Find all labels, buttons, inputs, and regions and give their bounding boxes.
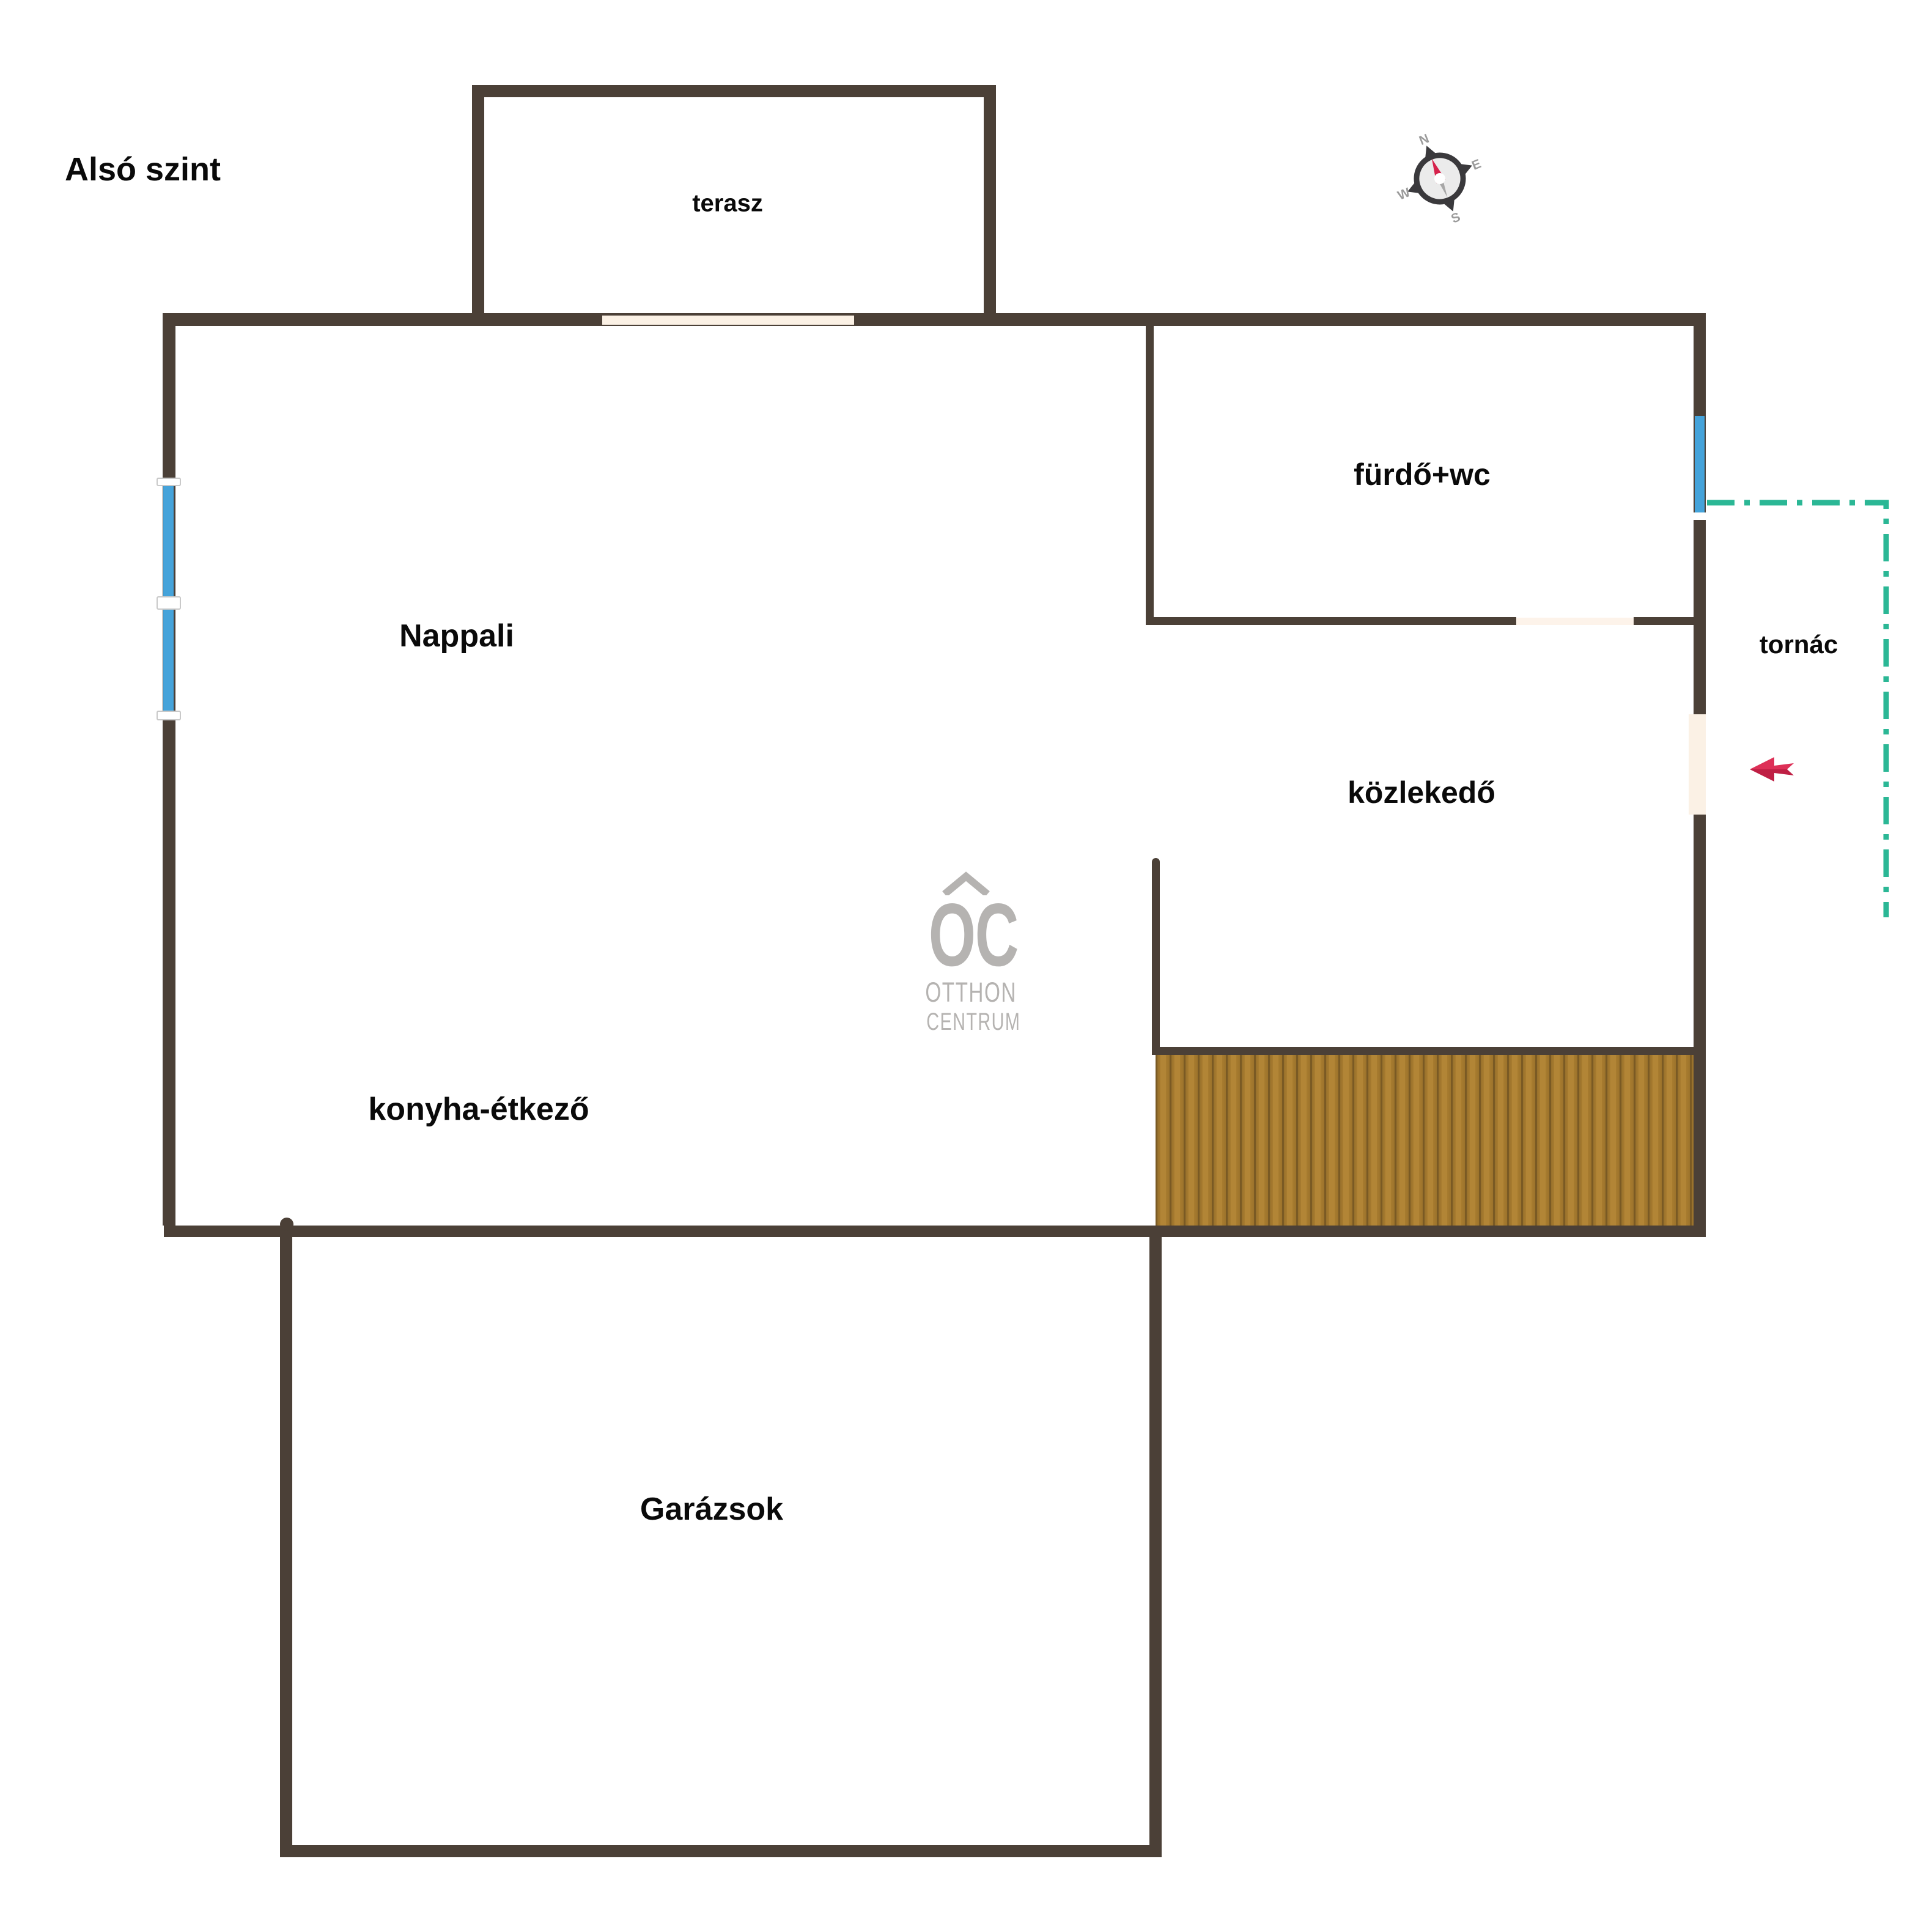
porch-boundary-line [1707,503,1886,917]
exterior-wall-top [164,313,1706,326]
living-room-window-upper [163,485,174,601]
room-label-tornac: tornác [1760,630,1838,659]
logo-initials: OC [929,900,1003,970]
compass-icon: N E S W [1388,130,1492,234]
compass-label-west: W [1396,185,1412,203]
terrace-door-opening [602,316,854,325]
terrace-wall-top [472,85,996,97]
window-mullion [157,596,181,610]
garage-wall-right [1149,1237,1162,1857]
room-label-terasz: terasz [692,190,763,218]
terrace-wall-left [472,85,484,313]
garage-wall-left [280,1237,292,1857]
room-label-garazsok: Garázsok [640,1491,783,1528]
window-cap-bottom [157,711,181,720]
entrance-arrow-bottom [1750,769,1794,782]
watermark-logo: OC OTTHON CENTRUM [911,871,1021,1034]
exterior-wall-bottom [164,1226,1706,1237]
garage-wall-bottom [280,1845,1162,1857]
room-label-kozlekedo: közlekedő [1348,775,1495,810]
bathroom-wall-bottom-right [1634,617,1694,625]
floor-title: Alsó szint [65,150,221,188]
living-room-window-lower [163,609,174,714]
terrace-wall-right [984,85,996,313]
compass-label-south: S [1449,210,1462,226]
room-label-konyha-etkezo: konyha-étkező [368,1091,589,1128]
bathroom-wall-bottom-left [1146,617,1516,625]
porch-boundary [1700,494,1895,922]
hallway-divider-wall [1152,858,1160,1055]
room-label-nappali: Nappali [399,618,514,654]
exterior-wall-left [163,313,175,1226]
window-cap-top [157,478,181,486]
wall-joint-cap [280,1218,293,1231]
floor-plan: Alsó szint [0,0,1932,1908]
bathroom-door-opening [1516,618,1634,625]
room-label-furdo-wc: fürdő+wc [1354,457,1491,492]
deck-top-edge [1152,1047,1694,1055]
logo-text-line2: CENTRUM [926,1010,1006,1034]
wooden-deck [1156,1055,1694,1226]
compass-label-north: N [1417,131,1431,148]
bathroom-wall-left [1146,326,1154,625]
entrance-arrow-top [1750,757,1794,769]
compass-label-east: E [1470,157,1483,173]
entrance-arrow-icon [1750,757,1795,782]
logo-text-line1: OTTHON [925,978,1006,1006]
